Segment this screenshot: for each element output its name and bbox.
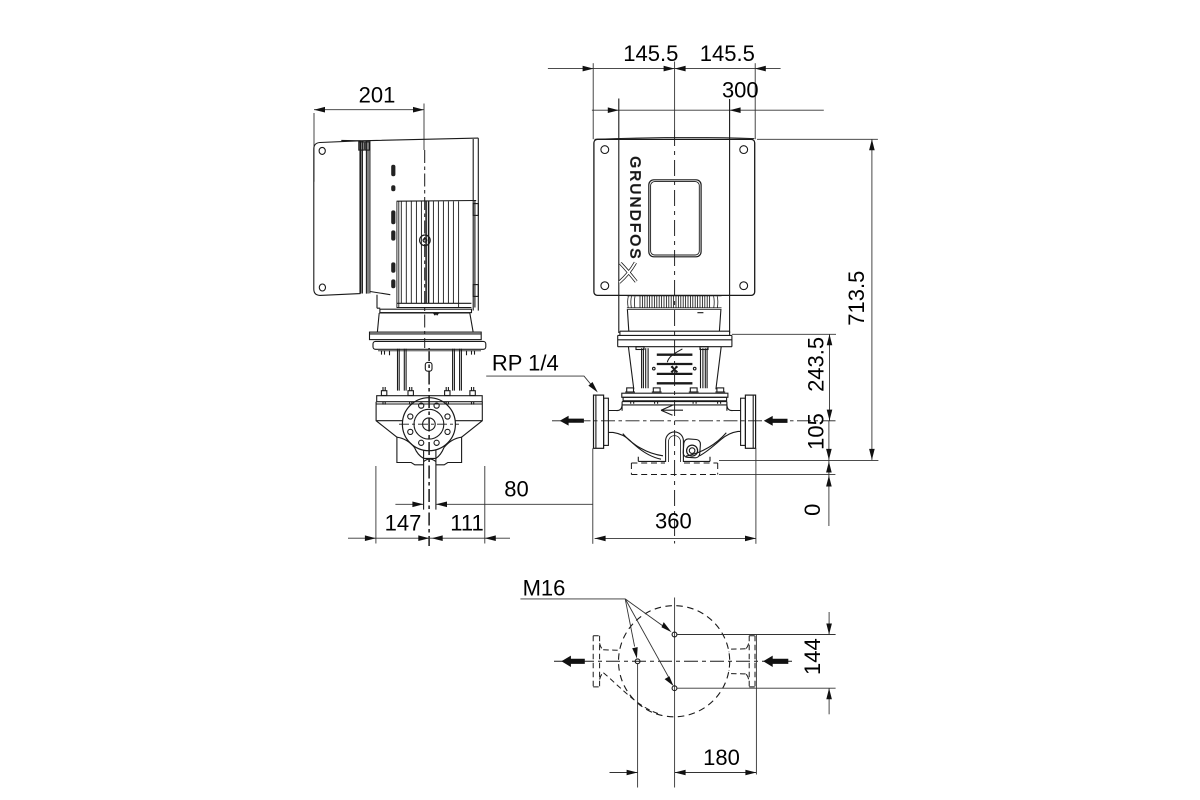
svg-text:M16: M16 [523,576,566,601]
svg-text:RP 1/4: RP 1/4 [492,351,559,376]
svg-text:GRUNDFOS: GRUNDFOS [627,156,644,261]
svg-text:145.5: 145.5 [623,41,678,66]
svg-text:105: 105 [804,413,829,450]
svg-text:243.5: 243.5 [804,337,829,392]
svg-text:144: 144 [800,638,825,675]
svg-text:713.5: 713.5 [844,271,869,326]
svg-text:180: 180 [703,745,740,770]
svg-text:360: 360 [655,509,692,534]
svg-text:145.5: 145.5 [700,41,755,66]
svg-text:80: 80 [504,477,528,502]
svg-text:111: 111 [450,511,483,536]
svg-text:300: 300 [722,77,759,102]
svg-text:0: 0 [800,504,825,516]
svg-text:147: 147 [385,511,422,536]
svg-text:201: 201 [359,82,396,107]
